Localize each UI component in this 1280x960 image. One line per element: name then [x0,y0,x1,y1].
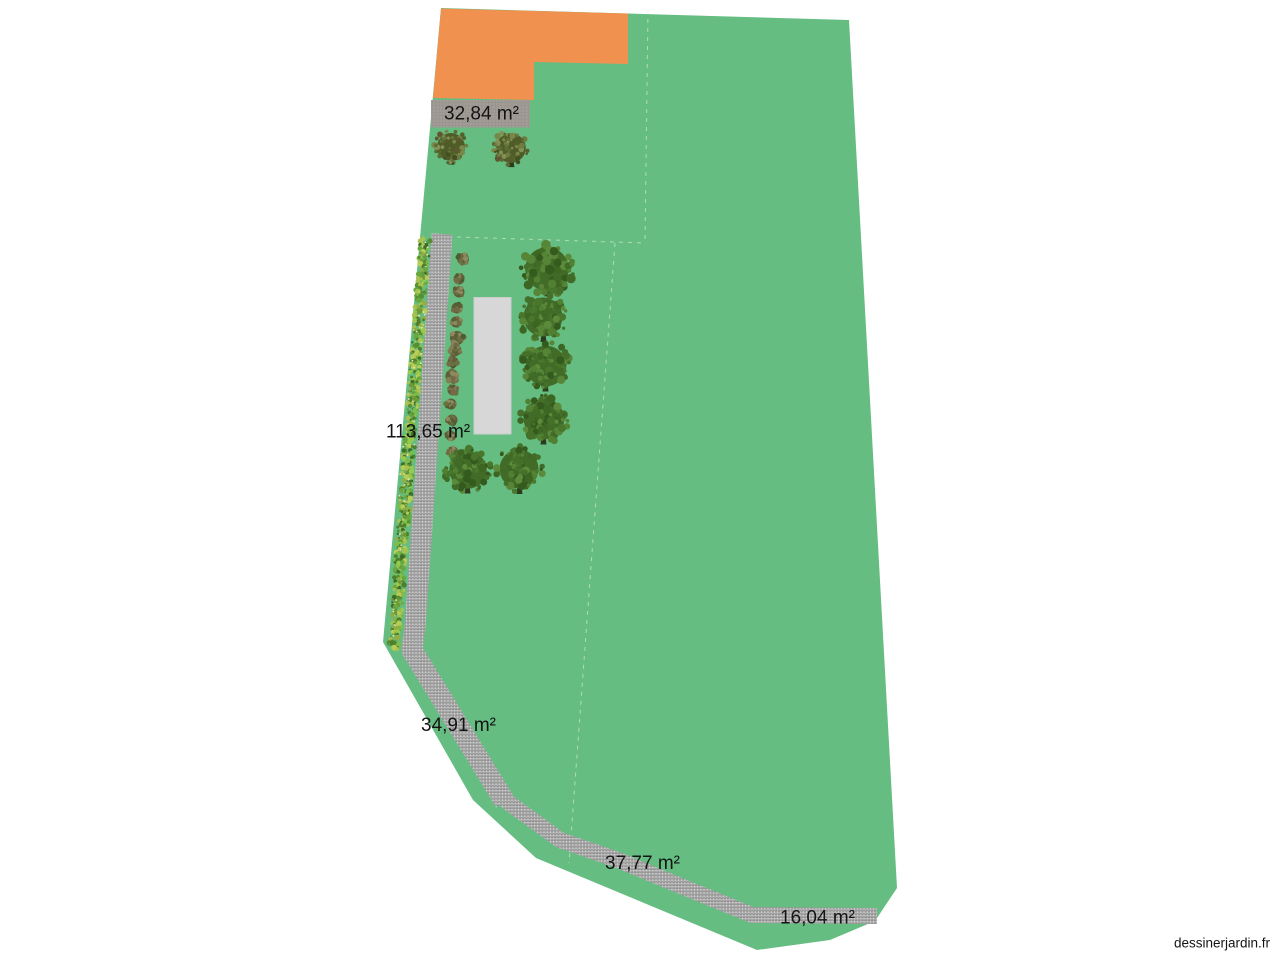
svg-text:dessinerjardin.fr: dessinerjardin.fr [1174,936,1271,951]
svg-text:16,04 m²: 16,04 m² [780,908,855,929]
svg-text:34,91 m²: 34,91 m² [421,715,496,736]
svg-text:37,77 m²: 37,77 m² [605,853,680,874]
svg-text:113,65 m²: 113,65 m² [386,422,470,443]
svg-text:32,84 m²: 32,84 m² [444,104,519,125]
